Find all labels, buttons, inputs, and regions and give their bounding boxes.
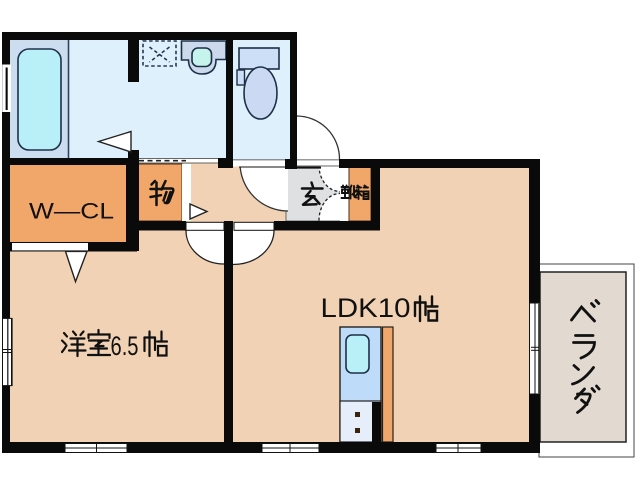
svg-text:LDK10: LDK10 (321, 293, 411, 323)
svg-text:W—CL: W—CL (29, 199, 114, 224)
svg-text:6.5: 6.5 (111, 331, 139, 361)
